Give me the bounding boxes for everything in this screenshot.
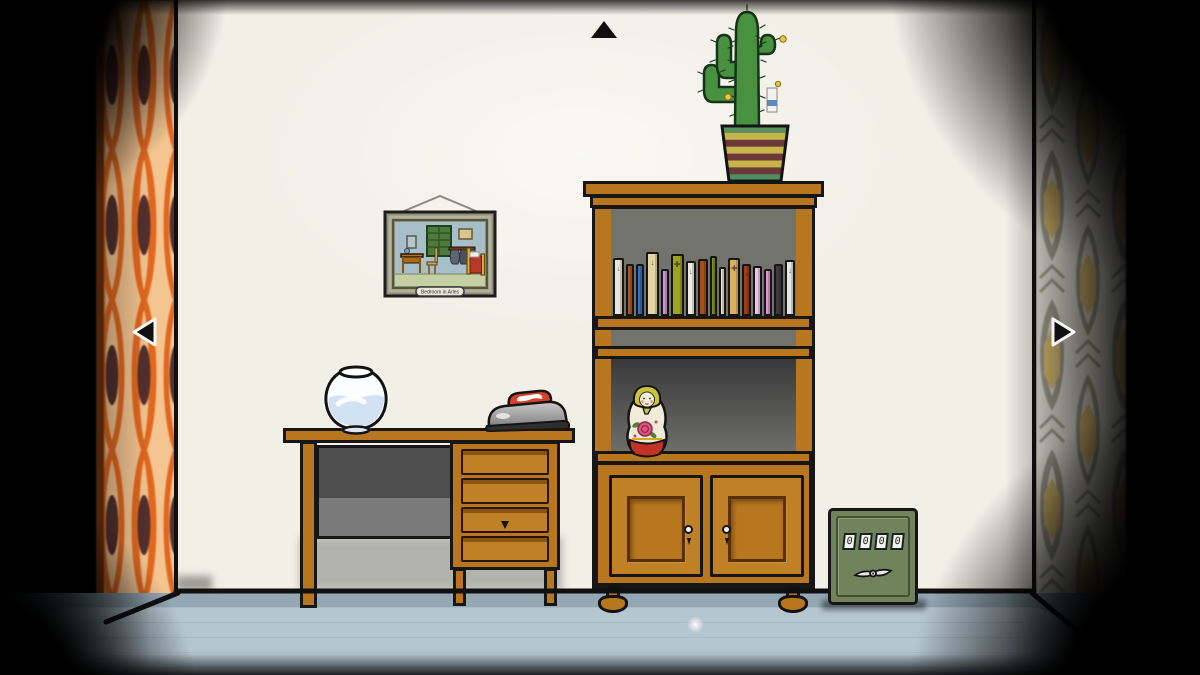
book-spine[interactable]: ↓ bbox=[686, 261, 696, 316]
bookcase-shelf bbox=[595, 316, 812, 330]
book-spine[interactable] bbox=[719, 267, 726, 316]
desk-drawer-unit bbox=[450, 441, 560, 570]
book-spine[interactable]: ↓ bbox=[613, 258, 624, 316]
floor-light-area bbox=[30, 607, 1070, 675]
clothes-iron[interactable] bbox=[481, 388, 575, 434]
bookcase-foot bbox=[778, 586, 808, 613]
book-spine[interactable]: ✚ bbox=[728, 258, 740, 316]
cabinet-keyhole-left bbox=[687, 538, 691, 545]
book-spine[interactable]: ↓ bbox=[646, 252, 659, 316]
desk-drawer-2[interactable] bbox=[461, 478, 549, 504]
cactus-plant[interactable] bbox=[697, 2, 807, 183]
scene-small-frame-right bbox=[459, 229, 472, 239]
left-arrow-icon bbox=[134, 319, 155, 345]
safe-handle[interactable] bbox=[853, 565, 894, 582]
cabinet-keyhole-right bbox=[725, 538, 729, 545]
book-spine[interactable] bbox=[636, 264, 644, 316]
combination-safe[interactable]: 0000 bbox=[828, 508, 918, 605]
fishbowl-rim bbox=[340, 367, 372, 377]
up-arrow-icon bbox=[591, 21, 617, 38]
desk-drawer-4[interactable] bbox=[461, 536, 549, 562]
wall-picture-bedroom-in-arles[interactable]: Bedroom in Arles bbox=[383, 192, 497, 298]
book-spine[interactable] bbox=[661, 269, 669, 316]
corner-shadow bbox=[176, 576, 212, 591]
safe-dial[interactable]: 0 bbox=[874, 533, 889, 550]
desk-leg bbox=[300, 441, 317, 608]
picture-scene bbox=[395, 222, 485, 286]
bookcase-rail bbox=[595, 346, 812, 359]
cabinet-knob-right[interactable] bbox=[722, 525, 731, 534]
game-scene: Bedroom in Arles bbox=[0, 0, 1200, 675]
book-spine[interactable]: ✚ bbox=[671, 254, 684, 316]
book-spine[interactable] bbox=[753, 266, 762, 316]
glowing-dot[interactable] bbox=[687, 616, 704, 633]
bookshelf-books: ↓↓✚↓✚▫↓ bbox=[613, 246, 795, 316]
navigate-up-arrow[interactable] bbox=[591, 21, 617, 38]
safe-dial[interactable]: 0 bbox=[842, 533, 857, 550]
bookcase-cabinet bbox=[595, 462, 812, 588]
scene-chair bbox=[427, 262, 437, 265]
desk-drawer-3[interactable] bbox=[461, 507, 549, 533]
safe-door-panel bbox=[836, 516, 910, 597]
picture-plaque-label: Bedroom in Arles bbox=[421, 290, 460, 296]
book-spine[interactable] bbox=[774, 264, 783, 316]
fishbowl[interactable] bbox=[318, 362, 394, 436]
cactus-body bbox=[704, 12, 775, 128]
bookcase-foot bbox=[598, 586, 628, 613]
book-spine[interactable]: ↓ bbox=[785, 260, 795, 316]
cactus-pot-stripes bbox=[722, 126, 788, 182]
safe-dial[interactable]: 0 bbox=[890, 533, 905, 550]
scene-small-frame-left bbox=[407, 236, 416, 248]
desk-back-panel bbox=[316, 445, 454, 539]
book-spine[interactable]: ▫ bbox=[742, 264, 751, 316]
book-spine[interactable] bbox=[764, 269, 772, 316]
drawer-keyhole bbox=[501, 521, 509, 529]
safe-dial[interactable]: 0 bbox=[858, 533, 873, 550]
navigate-right-arrow[interactable] bbox=[1051, 317, 1077, 347]
matryoshka-doll[interactable] bbox=[621, 383, 673, 459]
cabinet-door-panel bbox=[728, 496, 786, 562]
book-spine[interactable] bbox=[710, 256, 717, 316]
cabinet-door-panel bbox=[627, 496, 685, 562]
navigate-left-arrow[interactable] bbox=[131, 317, 157, 347]
desk-leg bbox=[453, 568, 466, 606]
scene-jug bbox=[405, 249, 410, 254]
book-spine[interactable] bbox=[698, 259, 709, 316]
safe-dials: 0000 bbox=[831, 533, 915, 550]
right-arrow-icon bbox=[1053, 319, 1074, 345]
desk-drawer-1[interactable] bbox=[461, 449, 549, 475]
book-spine[interactable] bbox=[626, 264, 634, 316]
desk-leg bbox=[544, 568, 557, 606]
cabinet-knob-left[interactable] bbox=[684, 525, 693, 534]
